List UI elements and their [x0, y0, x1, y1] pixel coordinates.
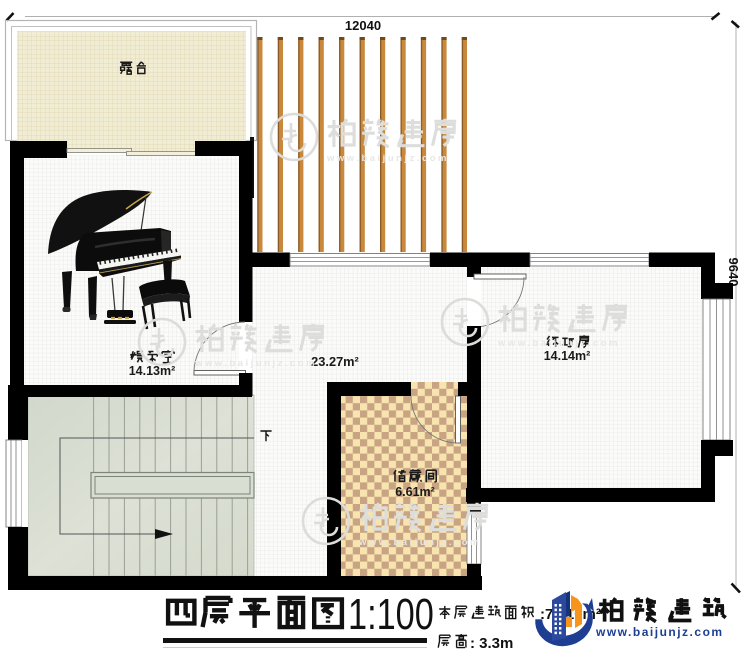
svg-text:www.baijunjz.com: www.baijunjz.com: [194, 358, 317, 369]
svg-text:23.27m²: 23.27m²: [311, 354, 359, 369]
svg-text:9640: 9640: [726, 258, 741, 287]
svg-text:14.14m²: 14.14m²: [544, 349, 591, 363]
svg-text:www.baijunjz.com: www.baijunjz.com: [595, 625, 724, 639]
svg-text:6.61m²: 6.61m²: [395, 485, 435, 499]
svg-text:www.baijunjz.com: www.baijunjz.com: [497, 338, 620, 349]
svg-text:www.baijunjz.com: www.baijunjz.com: [358, 537, 481, 548]
svg-text:14.13m²: 14.13m²: [129, 364, 176, 378]
svg-text:: 3.3m: : 3.3m: [470, 635, 513, 652]
svg-text:www.baijunjz.com: www.baijunjz.com: [326, 153, 449, 164]
svg-text:12040: 12040: [345, 18, 381, 33]
svg-text:1:100: 1:100: [348, 590, 434, 639]
